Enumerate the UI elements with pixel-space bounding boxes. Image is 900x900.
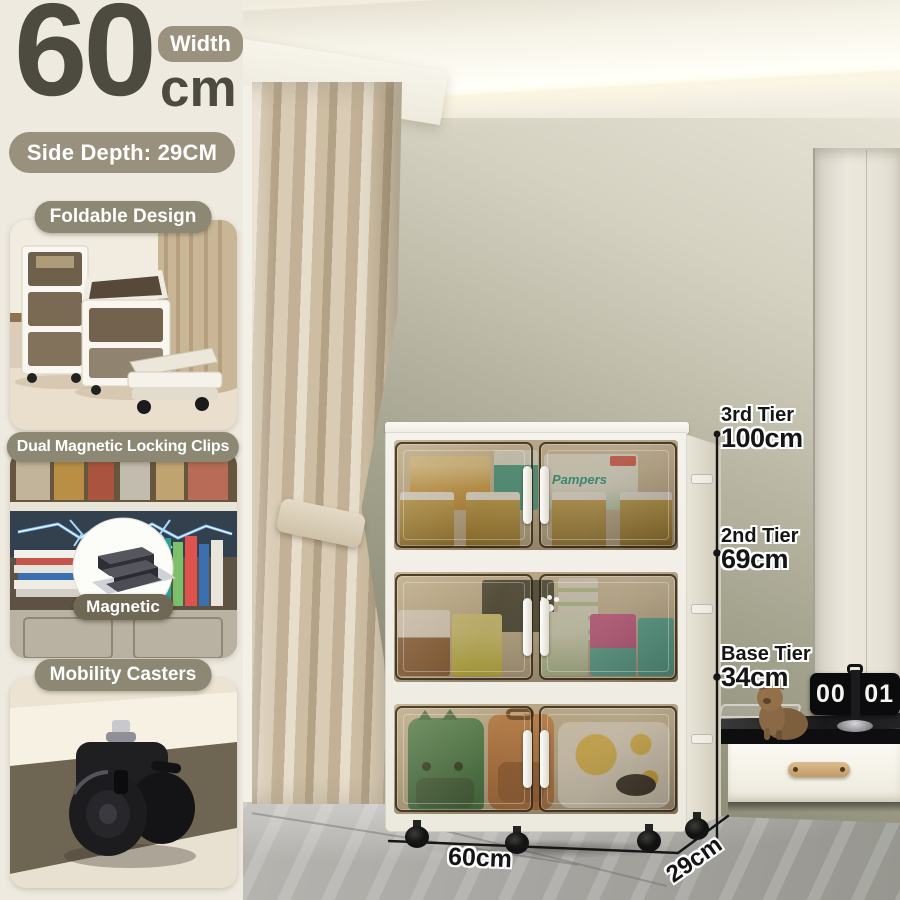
door-handles [523, 466, 549, 524]
clock-minutes: 01 [864, 682, 894, 707]
flip-clock: 00 01 [810, 664, 900, 738]
glass-door-right [539, 442, 677, 548]
clock-stand [851, 670, 860, 720]
caster-wheel [637, 824, 661, 852]
foldable-design-photo [10, 220, 237, 430]
door-handles [523, 730, 549, 788]
info-sidebar: 60 Width cm Side Depth: 29CM [0, 0, 243, 900]
vanity-shadow [728, 802, 900, 812]
glass-door-left [395, 442, 533, 548]
feature-card-casters [10, 678, 237, 888]
cabinet-tier-base [394, 704, 678, 814]
cabinet-unfolded [22, 246, 88, 383]
feature-label-foldable: Foldable Design [35, 201, 212, 233]
dim-tier-3: 3rd Tier 100cm [721, 405, 803, 453]
cabinet-side-panel [685, 434, 721, 832]
width-badge: Width [158, 26, 243, 62]
glass-door-left [395, 574, 533, 680]
dim-tier-base-name: Base Tier [721, 644, 811, 664]
glass-door-right [539, 706, 677, 812]
side-depth-pill: Side Depth: 29CM [9, 132, 235, 173]
width-unit: cm [160, 62, 237, 115]
feature-card-foldable [10, 220, 237, 430]
wardrobe-panel [813, 148, 900, 718]
magnetic-clips-photo [10, 450, 237, 658]
cabinet-front: Pampers [385, 432, 687, 832]
dim-tier-2-value: 69cm [721, 546, 798, 574]
clock-hours: 00 [816, 682, 846, 707]
caster-wheel [405, 820, 429, 848]
feature-label-magnetic: Dual Magnetic Locking Clips [7, 432, 239, 462]
dim-tier-base: Base Tier 34cm [721, 644, 811, 692]
cabinet-tier-2 [394, 572, 678, 682]
dim-tier-2: 2nd Tier 69cm [721, 526, 798, 574]
door-handles [523, 598, 549, 656]
storage-cabinet: Pampers [385, 418, 725, 860]
glass-door-left [395, 706, 533, 812]
dim-width: 60cm [447, 845, 512, 873]
dim-tier-2-name: 2nd Tier [721, 526, 798, 546]
glass-door-right [539, 574, 677, 680]
feature-card-magnetic [10, 450, 237, 658]
product-size-image: 00 01 Pampers [0, 0, 900, 900]
clock-base [837, 720, 873, 732]
dim-tier-3-value: 100cm [721, 425, 803, 453]
cabinet-tier-3: Pampers [394, 440, 678, 550]
side-clip [691, 604, 713, 614]
dim-tier-base-value: 34cm [721, 664, 811, 692]
width-value: 60 [14, 0, 153, 116]
mobility-caster-photo [10, 678, 237, 888]
magnetic-badge: Magnetic [73, 594, 173, 620]
dim-tier-3-name: 3rd Tier [721, 405, 803, 425]
drawer-wood-handle [788, 762, 850, 777]
panel-seam [866, 150, 867, 716]
side-clip [691, 474, 713, 484]
side-clip [691, 734, 713, 744]
feature-label-casters: Mobility Casters [35, 659, 212, 691]
